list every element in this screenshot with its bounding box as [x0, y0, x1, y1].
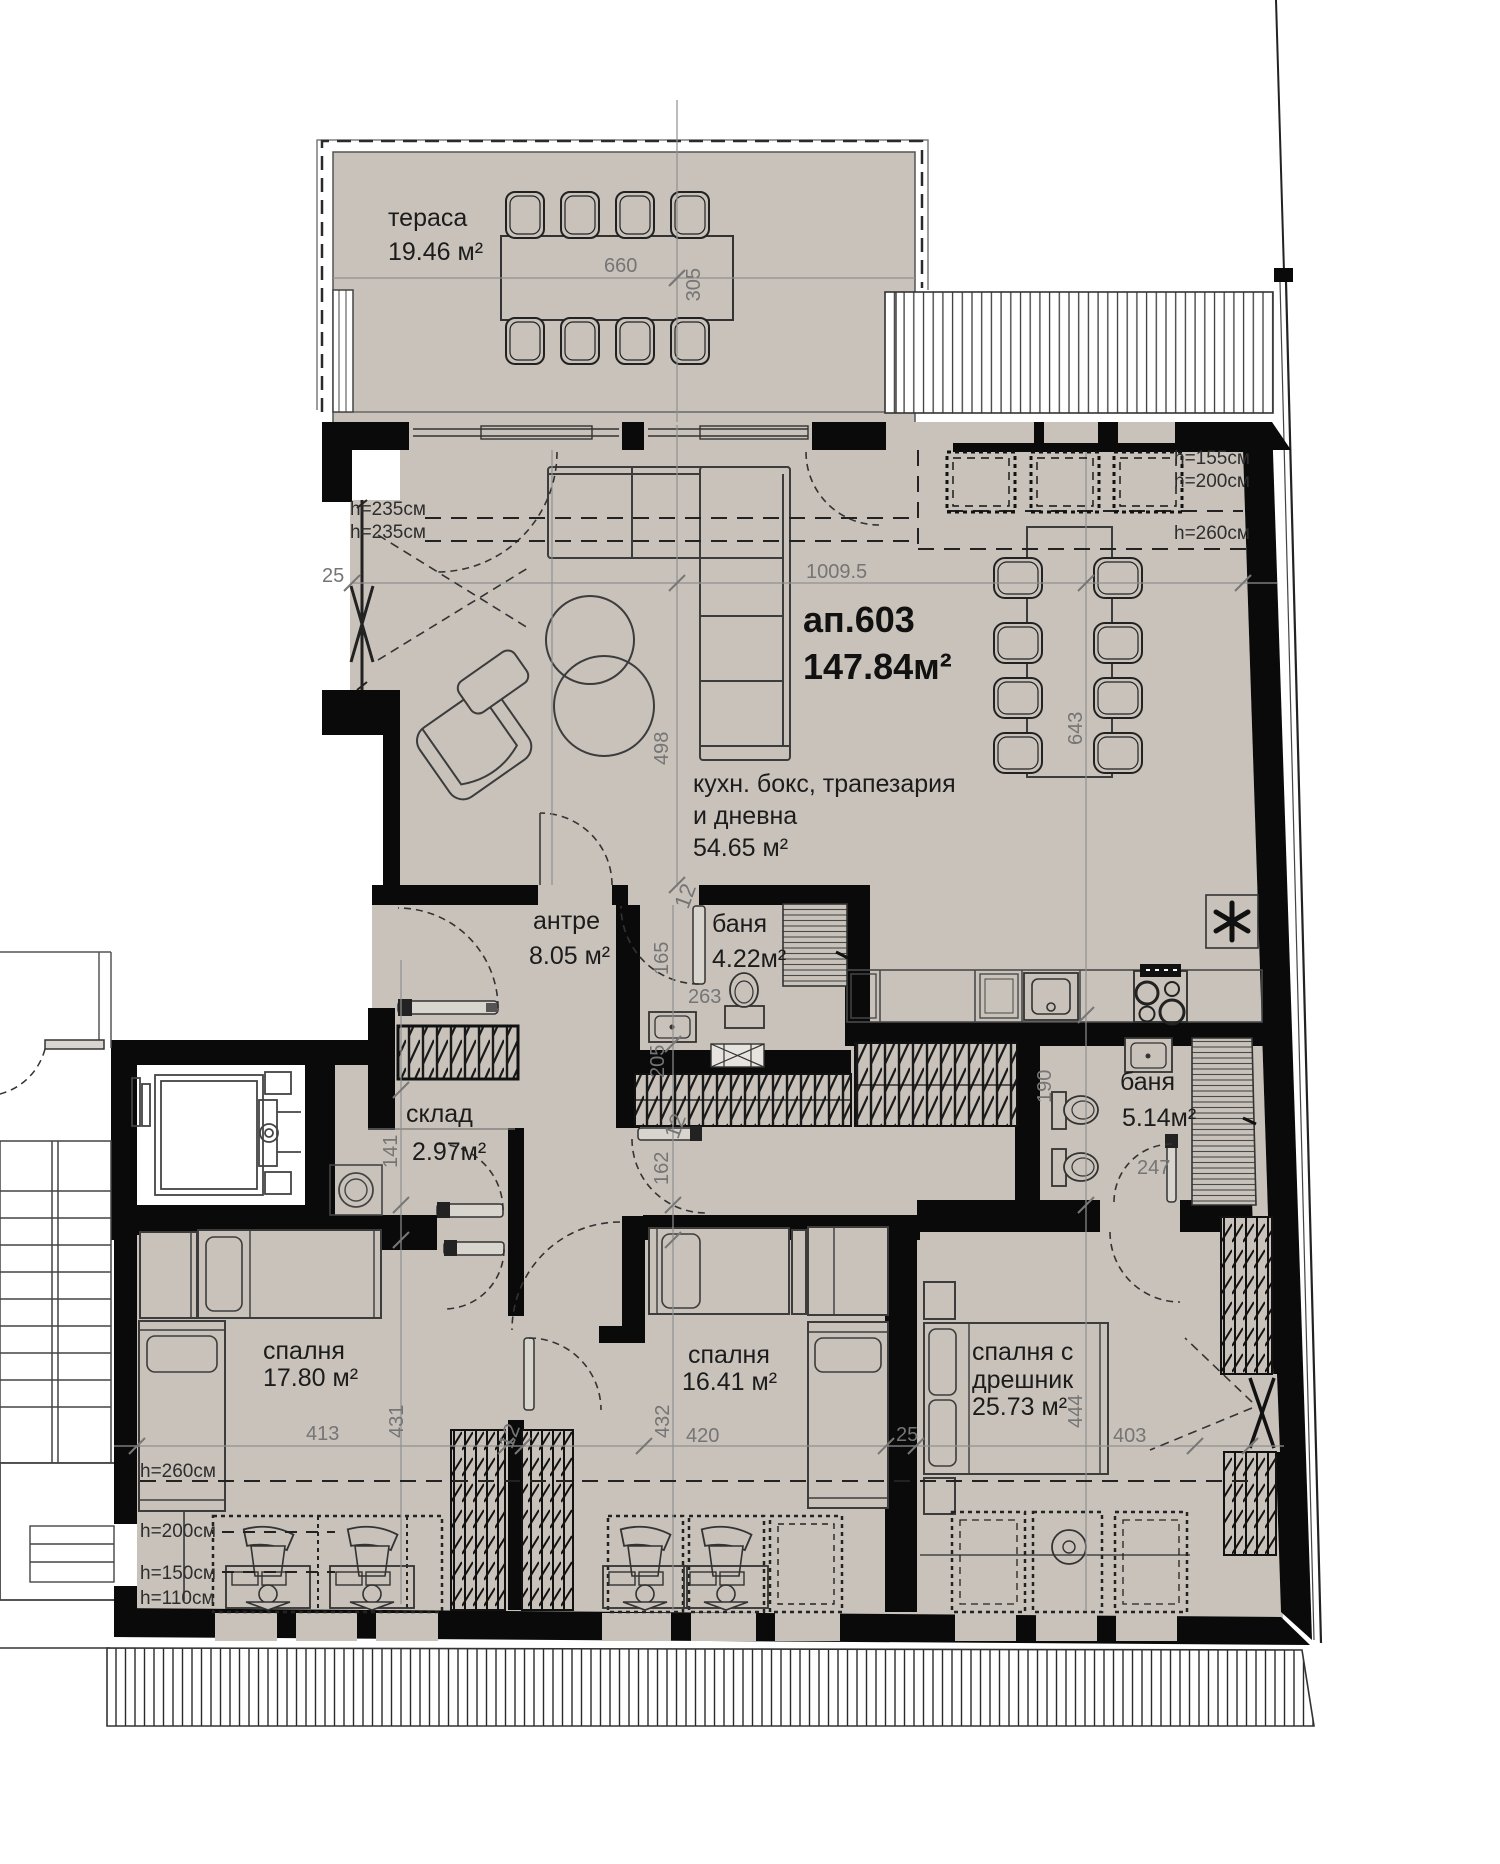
svg-text:17.80 м²: 17.80 м²	[263, 1364, 358, 1392]
svg-text:16.41 м²: 16.41 м²	[682, 1368, 777, 1396]
svg-text:кухн. бокс, трапезария: кухн. бокс, трапезария	[693, 770, 956, 798]
svg-text:h=150см: h=150см	[140, 1563, 216, 1584]
svg-text:тераса: тераса	[388, 204, 467, 232]
svg-text:432: 432	[652, 1405, 674, 1438]
svg-text:8.05 м²: 8.05 м²	[529, 942, 610, 970]
svg-text:25: 25	[896, 1424, 918, 1446]
svg-text:склад: склад	[406, 1100, 473, 1128]
svg-text:2.97м²: 2.97м²	[412, 1138, 486, 1166]
svg-text:ап.603: ап.603	[803, 599, 915, 640]
svg-text:19.46 м²: 19.46 м²	[388, 238, 483, 266]
svg-text:403: 403	[1113, 1425, 1146, 1447]
svg-text:и дневна: и дневна	[693, 802, 797, 830]
svg-text:спалня: спалня	[688, 1341, 770, 1369]
svg-text:4.22м²: 4.22м²	[712, 945, 786, 973]
svg-text:антре: антре	[533, 907, 600, 935]
svg-text:162: 162	[651, 1152, 673, 1185]
svg-text:54.65 м²: 54.65 м²	[693, 834, 788, 862]
svg-text:190: 190	[1034, 1070, 1056, 1103]
svg-text:h=235см: h=235см	[350, 522, 426, 543]
svg-text:263: 263	[688, 986, 721, 1008]
svg-text:h=200см: h=200см	[1174, 471, 1250, 492]
svg-text:141: 141	[380, 1135, 402, 1168]
svg-text:h=260см: h=260см	[140, 1461, 216, 1482]
svg-text:420: 420	[686, 1425, 719, 1447]
svg-text:305: 305	[683, 268, 705, 301]
svg-text:444: 444	[1065, 1395, 1087, 1428]
svg-text:1009.5: 1009.5	[806, 561, 867, 583]
svg-text:643: 643	[1065, 712, 1087, 745]
svg-text:25.73 м²: 25.73 м²	[972, 1393, 1067, 1421]
svg-text:165: 165	[651, 942, 673, 975]
svg-text:147.84м²: 147.84м²	[803, 646, 952, 687]
svg-text:431: 431	[386, 1405, 408, 1438]
svg-text:h=110см: h=110см	[140, 1588, 215, 1609]
svg-text:247: 247	[1137, 1157, 1170, 1179]
svg-text:баня: баня	[1120, 1068, 1175, 1096]
svg-text:5.14м²: 5.14м²	[1122, 1104, 1196, 1132]
svg-text:205: 205	[647, 1045, 669, 1078]
svg-text:h=200см: h=200см	[140, 1521, 216, 1542]
svg-text:баня: баня	[712, 910, 767, 938]
svg-text:h=235см: h=235см	[350, 499, 426, 520]
svg-text:h=260см: h=260см	[1174, 523, 1250, 544]
svg-text:25: 25	[322, 565, 344, 587]
svg-text:спалня с: спалня с	[972, 1338, 1073, 1366]
svg-text:h=155см: h=155см	[1174, 448, 1250, 469]
svg-text:413: 413	[306, 1423, 339, 1445]
svg-text:дрешник: дрешник	[972, 1366, 1074, 1394]
svg-text:498: 498	[651, 732, 673, 765]
svg-text:660: 660	[604, 255, 637, 277]
svg-text:спалня: спалня	[263, 1337, 345, 1365]
